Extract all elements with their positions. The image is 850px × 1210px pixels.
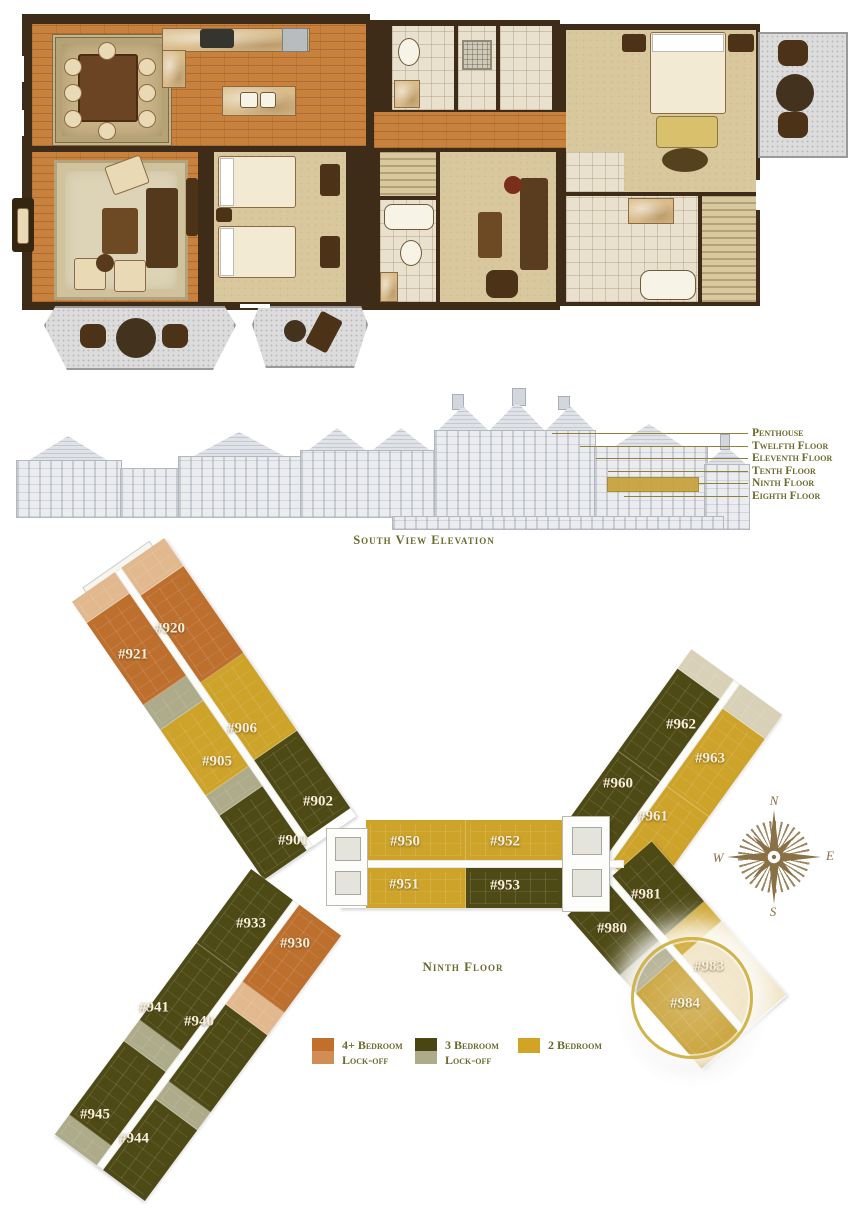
decorative-shape: Lock-off	[342, 1053, 403, 1068]
unit-label-963[interactable]: #963	[695, 751, 725, 768]
decorative-shape: Lock-off	[445, 1053, 499, 1068]
unit-label-980[interactable]: #980	[597, 921, 627, 938]
unit-label-950[interactable]: #950	[390, 834, 420, 851]
decorative-shape: 2 Bedroom	[548, 1038, 602, 1053]
unit-label-930[interactable]: #930	[280, 936, 310, 953]
compass-north-label: N	[770, 793, 779, 809]
unit-label-902[interactable]: #902	[303, 794, 333, 811]
legend-item-2: 2 Bedroom	[518, 1038, 602, 1053]
ninth-floor-highlight	[607, 477, 699, 492]
unit-label-905[interactable]: #905	[202, 754, 232, 771]
legend-swatch-0	[312, 1038, 334, 1064]
unit-label-951[interactable]: #951	[389, 877, 419, 894]
legend-item-1: 3 BedroomLock-off	[415, 1038, 499, 1068]
legend-swatch-2	[518, 1038, 540, 1053]
decorative-shape: 3 Bedroom	[445, 1038, 499, 1053]
unit-label-952[interactable]: #952	[490, 834, 520, 851]
legend-label-0: 4+ BedroomLock-off	[342, 1038, 403, 1068]
unit-label-941[interactable]: #941	[139, 1000, 169, 1017]
unit-label-953[interactable]: #953	[490, 878, 520, 895]
unit-label-933[interactable]: #933	[236, 916, 266, 933]
unit-label-960[interactable]: #960	[603, 776, 633, 793]
legend-label-1: 3 BedroomLock-off	[445, 1038, 499, 1068]
legend-swatch-1	[415, 1038, 437, 1064]
legend-item-0: 4+ BedroomLock-off	[312, 1038, 403, 1068]
unit-label-906[interactable]: #906	[227, 721, 257, 738]
unit-label-940[interactable]: #940	[184, 1014, 214, 1031]
unit-label-962[interactable]: #962	[666, 717, 696, 734]
unit-label-983[interactable]: #983	[694, 959, 724, 976]
unit-label-920[interactable]: #920	[155, 621, 185, 638]
ninth-floor-key-plan: #920#921#906#905#902#901#950#952#951#953…	[0, 560, 850, 1210]
brochure-page: PenthouseTwelfth FloorEleventh FloorTent…	[0, 0, 850, 1210]
unit-label-921[interactable]: #921	[118, 647, 148, 664]
legend-label-2: 2 Bedroom	[548, 1038, 602, 1053]
compass-west-label: W	[713, 850, 724, 866]
compass-south-label: S	[770, 904, 777, 920]
unit-label-984[interactable]: #984	[670, 996, 700, 1013]
unit-label-981[interactable]: #981	[631, 887, 661, 904]
unit-label-901[interactable]: #901	[278, 833, 308, 850]
unit-label-945[interactable]: #945	[80, 1107, 110, 1124]
unit-label-961[interactable]: #961	[638, 809, 668, 826]
compass-east-label: E	[826, 848, 834, 864]
unit-label-944[interactable]: #944	[119, 1131, 149, 1148]
decorative-shape: 4+ Bedroom	[342, 1038, 403, 1053]
